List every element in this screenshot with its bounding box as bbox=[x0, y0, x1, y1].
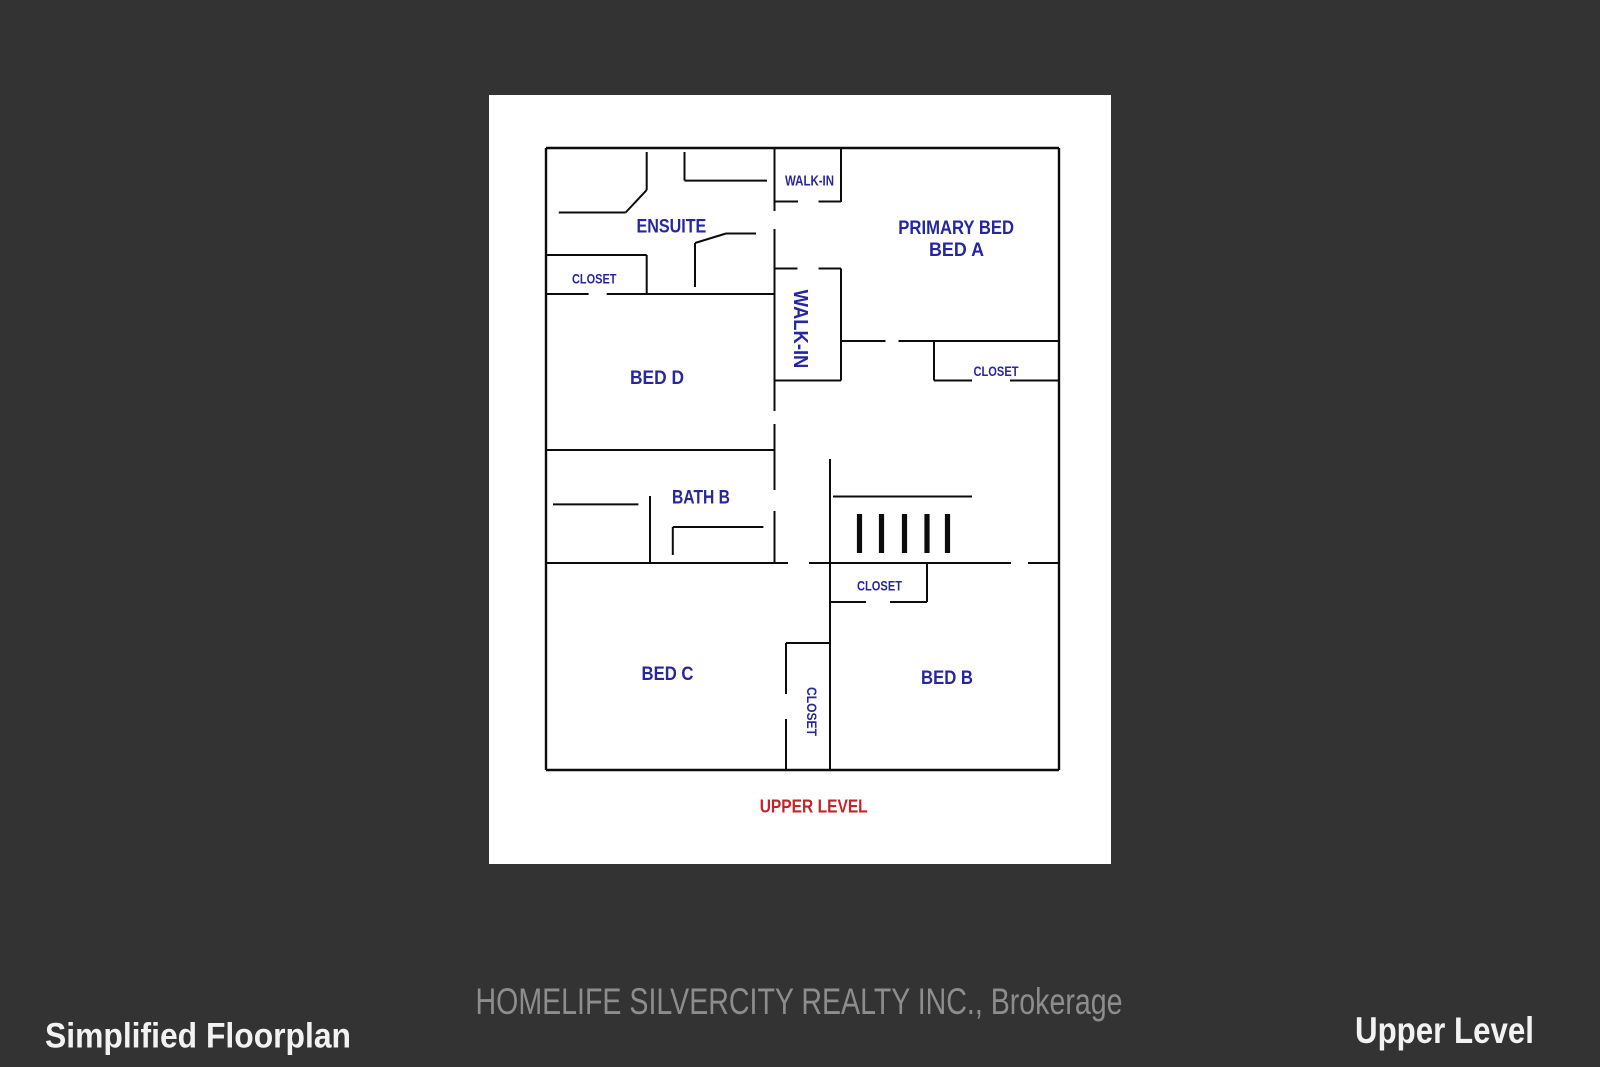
svg-text:HOMELIFE SILVERCITY REALTY INC: HOMELIFE SILVERCITY REALTY INC., Brokera… bbox=[476, 981, 1123, 1022]
svg-text:CLOSET: CLOSET bbox=[974, 363, 1019, 379]
svg-text:BED A: BED A bbox=[929, 240, 984, 261]
svg-text:UPPER LEVEL: UPPER LEVEL bbox=[760, 796, 868, 816]
svg-text:BED C: BED C bbox=[642, 663, 694, 685]
svg-text:CLOSET: CLOSET bbox=[857, 578, 902, 594]
svg-text:BATH B: BATH B bbox=[672, 486, 730, 508]
svg-text:Simplified Floorplan: Simplified Floorplan bbox=[45, 1016, 351, 1055]
svg-text:PRIMARY BED: PRIMARY BED bbox=[898, 218, 1014, 239]
svg-text:WALK-IN: WALK-IN bbox=[789, 290, 811, 369]
svg-text:BED D: BED D bbox=[630, 368, 684, 389]
svg-text:WALK-IN: WALK-IN bbox=[785, 173, 834, 190]
svg-text:ENSUITE: ENSUITE bbox=[637, 217, 707, 238]
svg-text:CLOSET: CLOSET bbox=[804, 687, 820, 736]
svg-text:BED B: BED B bbox=[921, 667, 973, 689]
svg-text:Upper Level: Upper Level bbox=[1355, 1010, 1534, 1051]
svg-text:CLOSET: CLOSET bbox=[572, 270, 617, 286]
